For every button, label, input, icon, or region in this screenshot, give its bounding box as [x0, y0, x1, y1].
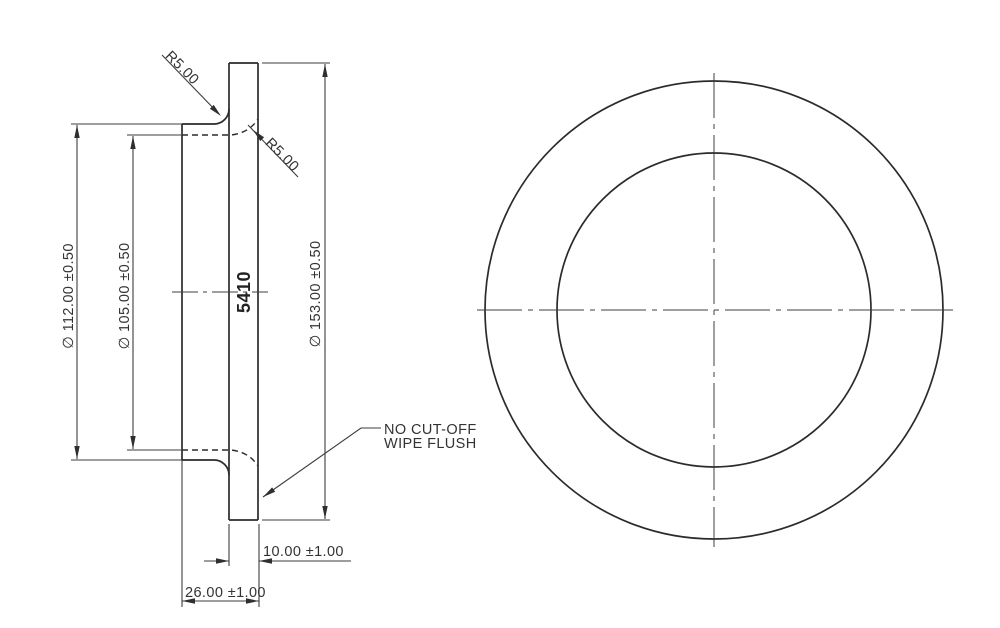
arrowhead-up: [74, 125, 79, 138]
part-marking: 5410: [234, 271, 254, 313]
dimension-bore-diameter: ∅ 105.00 ±0.50: [117, 135, 181, 450]
dimension-flange-diameter: ∅ 153.00 ±0.50: [262, 63, 330, 520]
thickness-label: 10.00 ±1.00: [263, 544, 344, 560]
callout-fillet-inner: R5.00: [248, 125, 302, 177]
fillet-outer-label: R5.00: [162, 48, 202, 88]
dimension-overall-length: 26.00 ±1.00: [182, 460, 266, 607]
arrowhead: [210, 105, 223, 118]
arrowhead-up: [130, 136, 135, 149]
front-view: [477, 73, 953, 547]
arrowhead-up: [322, 64, 327, 77]
drawing-canvas: ∅ 112.00 ±0.50 ∅ 105.00 ±0.50 ∅ 153.00 ±…: [0, 0, 1000, 628]
hub-top-edge-fillet: [182, 109, 229, 124]
fillet-inner-label: R5.00: [262, 135, 302, 175]
arrowhead-down: [322, 506, 327, 519]
note-line-2: WIPE FLUSH: [384, 436, 477, 452]
arrowhead: [261, 487, 275, 499]
note-callout: NO CUT-OFF WIPE FLUSH: [261, 422, 476, 499]
technical-drawing-svg: ∅ 112.00 ±0.50 ∅ 105.00 ±0.50 ∅ 153.00 ±…: [0, 0, 1000, 628]
arrowhead-down: [130, 436, 135, 449]
arrowhead-right: [216, 558, 229, 563]
hub-diameter-label: ∅ 112.00 ±0.50: [61, 243, 77, 349]
length-label: 26.00 ±1.00: [185, 585, 266, 601]
hidden-bore-line-top: [182, 119, 258, 135]
bore-diameter-label: ∅ 105.00 ±0.50: [117, 243, 133, 350]
side-view: ∅ 112.00 ±0.50 ∅ 105.00 ±0.50 ∅ 153.00 ±…: [61, 48, 477, 607]
flange-diameter-label: ∅ 153.00 ±0.50: [308, 241, 324, 348]
hub-bottom-edge-fillet: [182, 460, 229, 475]
leader-line: [263, 428, 381, 497]
hidden-bore-line-bottom: [182, 450, 258, 466]
callout-fillet-outer: R5.00: [162, 48, 223, 118]
arrowhead-down: [74, 446, 79, 459]
